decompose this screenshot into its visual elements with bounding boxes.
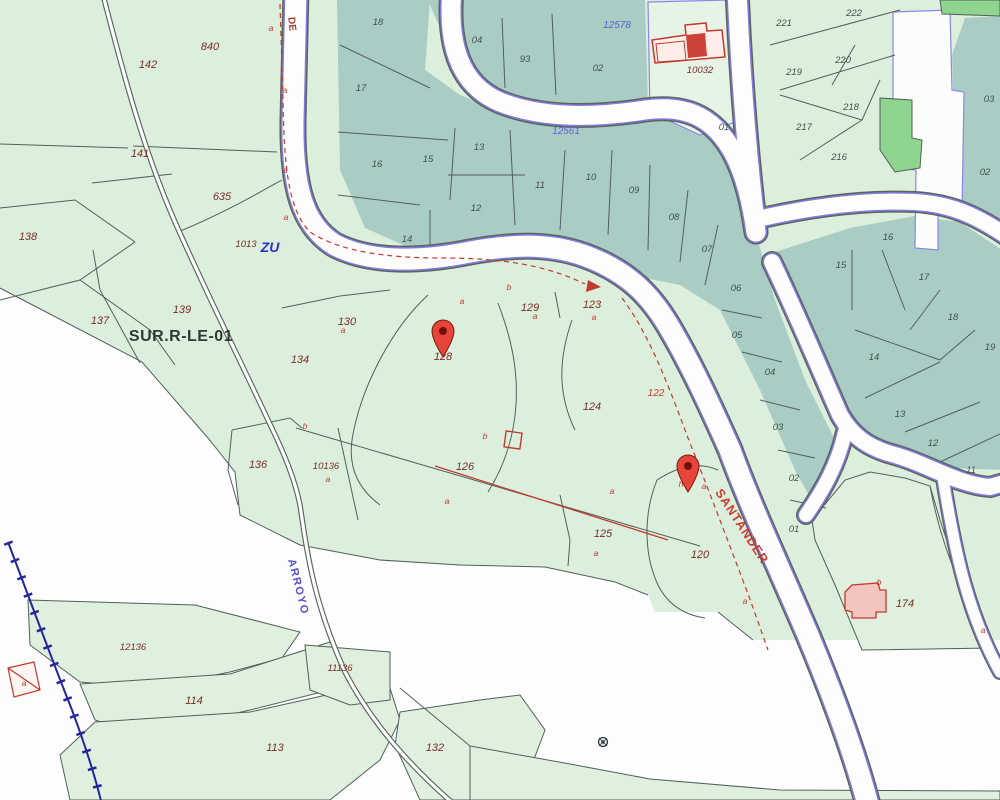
subparcel-letter-a-75: a <box>341 325 346 335</box>
subparcel-letter-a-69: a <box>283 165 288 175</box>
parcel-label-217-54: 217 <box>795 122 813 133</box>
parcel-label-12-32: 12 <box>471 203 482 214</box>
parcel-label-03-45: 03 <box>773 422 784 433</box>
parcel-label-113-19: 113 <box>266 742 284 754</box>
subparcel-letter-a-80: a <box>610 486 615 496</box>
parcel-label-120-16: 120 <box>691 549 710 561</box>
subparcel-letter-b-78: b <box>483 431 488 441</box>
parcel-label-12136-24: 12136 <box>120 642 147 653</box>
parcel-label-220-52: 220 <box>834 55 852 66</box>
subparcel-letter-a-70: a <box>284 212 289 222</box>
subparcel-letter-a-68: a <box>283 85 288 95</box>
parcel-label-635-6: 635 <box>213 191 232 203</box>
parcel-label-93-35: 93 <box>520 54 531 65</box>
parcel-label-141-1: 141 <box>131 148 149 160</box>
parcel-label-02-36: 02 <box>593 63 604 74</box>
subparcel-letter-a-74: a <box>592 312 597 322</box>
parcel-label-13-31: 13 <box>474 142 485 153</box>
parcel-label-216-55: 216 <box>830 152 848 163</box>
parcel-label-136-9: 136 <box>249 459 268 471</box>
parcel-label-16-56: 16 <box>883 232 894 243</box>
subparcel-letter-a-73: a <box>533 311 538 321</box>
parcel-label-137-3: 137 <box>91 315 110 327</box>
parcel-label-139-4: 139 <box>173 304 191 316</box>
subparcel-letter-b-72: b <box>507 282 512 292</box>
parcel-label-219-51: 219 <box>785 67 803 78</box>
parcel-label-05-43: 05 <box>732 330 743 341</box>
subparcel-letter-b-85: b <box>877 577 882 587</box>
cadastral-map: SUR.R-LE-01 DE SANTANDER ARROYO 12578 12… <box>0 0 1000 800</box>
parcel-label-218-53: 218 <box>842 102 860 113</box>
subparcel-letter-a-79: a <box>445 496 450 506</box>
parcel-label-124-13: 124 <box>583 401 601 413</box>
subparcel-letter-b-76: b <box>303 421 308 431</box>
subparcel-letter-a-87: a <box>22 678 27 688</box>
parcel-label-10136-22: 10136 <box>313 461 340 472</box>
parcel-label-03-65: 03 <box>984 94 995 105</box>
parcel-label-04-44: 04 <box>765 367 776 378</box>
parcel-label-11-64: 11 <box>966 465 976 476</box>
map-symbol <box>599 738 608 747</box>
parcel-label-06-42: 06 <box>731 283 742 294</box>
parcel-label-04-34: 04 <box>472 35 483 46</box>
parcel-label-01-48: 01 <box>719 122 730 133</box>
cadastral-map-viewport: SUR.R-LE-01 DE SANTANDER ARROYO 12578 12… <box>0 0 1000 800</box>
street-label-de: DE <box>285 17 297 32</box>
parcel-label-09-39: 09 <box>629 185 640 196</box>
subparcel-letter-a-67: a <box>269 23 274 33</box>
parcel-label-14-61: 14 <box>869 352 880 363</box>
parcel-label-10-38: 10 <box>586 172 597 183</box>
parcel-label-08-40: 08 <box>669 212 680 223</box>
parcel-label-126-14: 126 <box>456 461 475 473</box>
parcel-label-12-63: 12 <box>928 438 939 449</box>
subparcel-letter-a-83: a <box>702 481 707 491</box>
parcel-label-10032-23: 10032 <box>687 65 714 76</box>
ref-label-12561: 12561 <box>552 126 580 137</box>
parcel-label-122-26: 122 <box>648 388 665 399</box>
parcel-label-134-8: 134 <box>291 354 309 366</box>
parcel-label-114-18: 114 <box>185 695 203 707</box>
parcel-label-132-20: 132 <box>426 742 444 754</box>
parcel-label-19-60: 19 <box>985 342 996 353</box>
parcel-label-17-28: 17 <box>356 83 367 94</box>
subparcel-letter-a-81: a <box>594 548 599 558</box>
zone-label-zu: ZU <box>260 239 281 255</box>
parcel-label-01-47: 01 <box>789 524 800 535</box>
subparcel-letter-a-84: a <box>743 596 748 606</box>
parcel-label-138-2: 138 <box>19 231 38 243</box>
subparcel-letter-a-71: a <box>460 296 465 306</box>
parcel-label-16-29: 16 <box>372 159 383 170</box>
ref-label-12578: 12578 <box>603 20 631 31</box>
parcel-label-123-12: 123 <box>583 299 602 311</box>
subparcel-letter-a-86: a <box>981 625 986 635</box>
parcel-label-840-5: 840 <box>201 41 220 53</box>
parcel-label-14-33: 14 <box>402 234 413 245</box>
parcel-label-174-17: 174 <box>896 598 914 610</box>
green-parcel-corner <box>940 0 1000 16</box>
parcel-label-13-62: 13 <box>895 409 906 420</box>
parcel-label-02-66: 02 <box>980 167 991 178</box>
parcel-label-11136-25: 11136 <box>327 663 353 674</box>
zone-label: SUR.R-LE-01 <box>129 328 233 345</box>
parcel-label-18-27: 18 <box>373 17 384 28</box>
parcel-label-07-41: 07 <box>702 244 713 255</box>
parcel-label-11-37: 11 <box>535 180 545 191</box>
parcel-label-1013-21: 1013 <box>235 239 257 250</box>
parcel-label-15-57: 15 <box>836 260 847 271</box>
parcel-label-125-15: 125 <box>594 528 613 540</box>
parcel-label-15-30: 15 <box>423 154 434 165</box>
parcel-label-17-58: 17 <box>919 272 930 283</box>
parcel-label-18-59: 18 <box>948 312 959 323</box>
parcel-label-142-0: 142 <box>139 59 157 71</box>
parcel-label-221-49: 221 <box>775 18 792 29</box>
subparcel-letter-a-77: a <box>326 474 331 484</box>
parcel-label-02-46: 02 <box>789 473 800 484</box>
parcel-label-222-50: 222 <box>845 8 863 19</box>
